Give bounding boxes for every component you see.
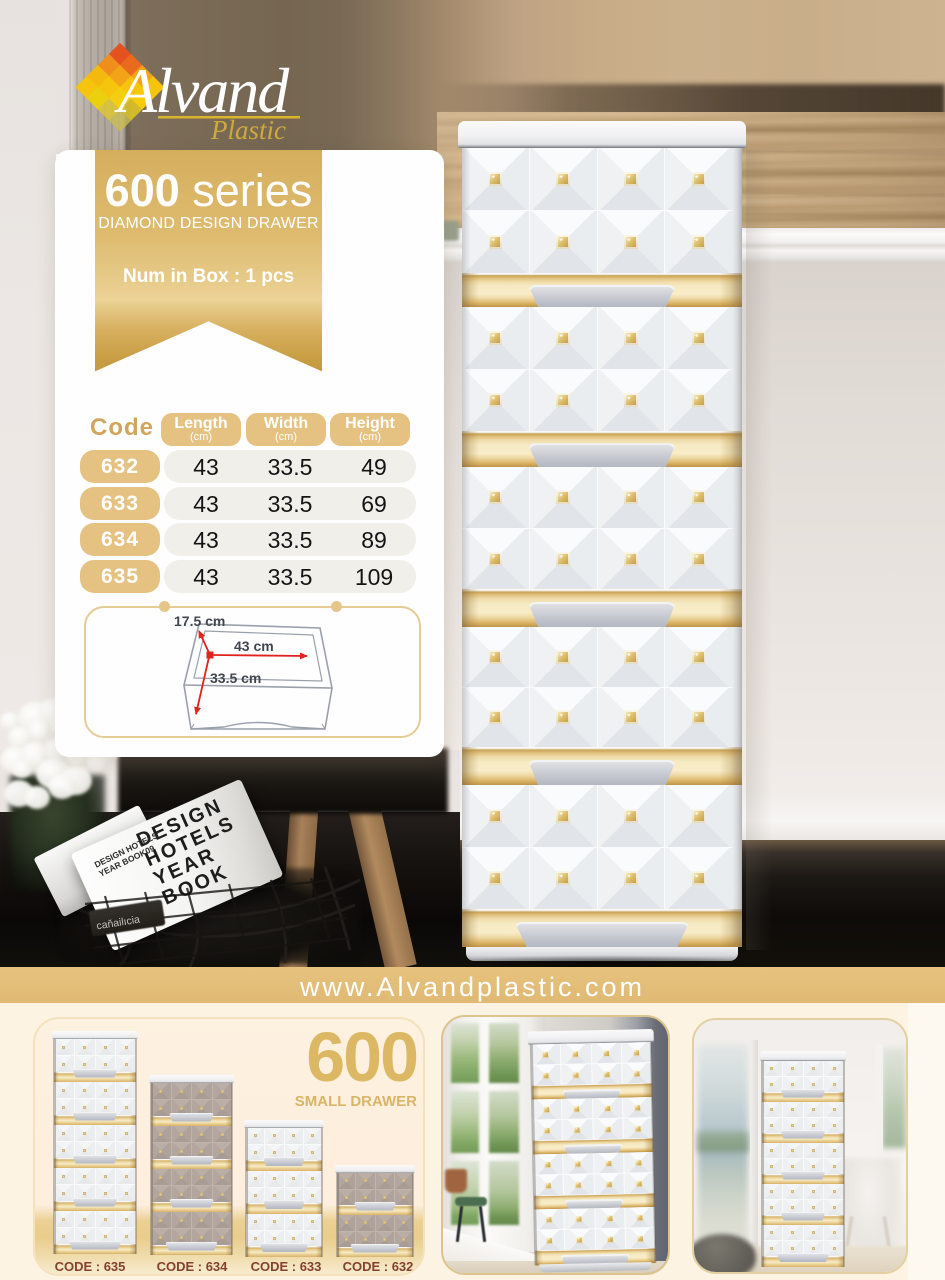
svg-text:33.5 cm: 33.5 cm — [210, 670, 261, 686]
svg-text:43 cm: 43 cm — [234, 638, 274, 654]
svg-text:Plastic: Plastic — [210, 115, 286, 145]
svg-text:17.5 cm: 17.5 cm — [174, 613, 225, 629]
